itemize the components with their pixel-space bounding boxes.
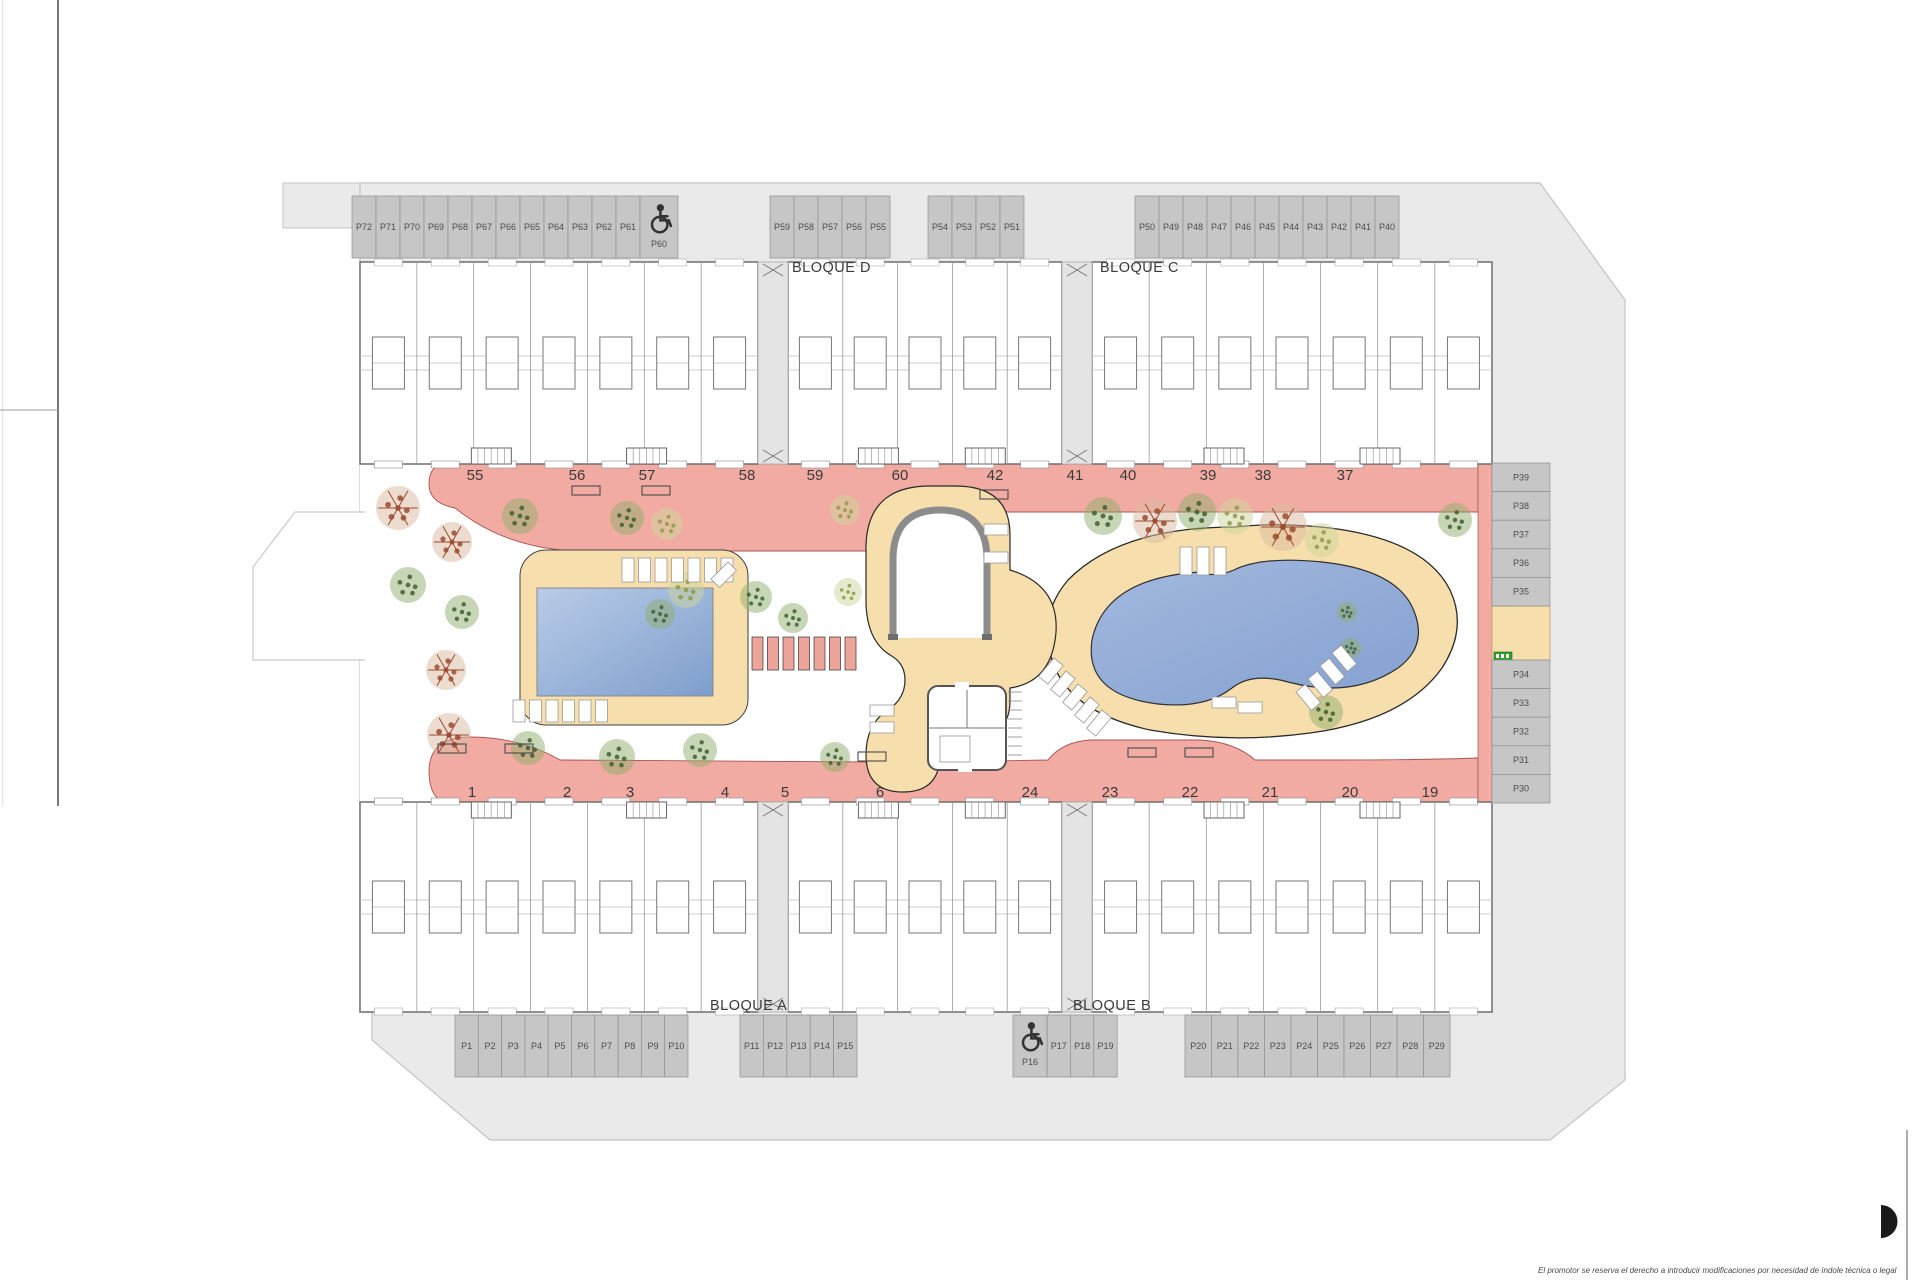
unit-number: 21 [1262, 784, 1279, 801]
sun-lounger [546, 700, 558, 722]
parking-stall-label: P23 [1270, 1041, 1286, 1051]
parking-stall-label: P36 [1513, 558, 1529, 568]
parking-stall: P41 [1351, 196, 1375, 258]
parking-stall: P71 [376, 196, 400, 258]
site-plan-drawing: P72P71P70P69P68P67P66P65P64P63P62P61P59P… [0, 0, 1920, 1280]
parking-stall: P24 [1291, 1015, 1318, 1077]
unit-number: 22 [1182, 784, 1199, 801]
parking-stall-label: P69 [428, 222, 444, 232]
parking-stall: P6 [572, 1015, 595, 1077]
parking-stall: P57 [818, 196, 842, 258]
parking-stall: P36 [1492, 549, 1550, 578]
stepping-stone [783, 637, 794, 670]
parking-stall: P68 [448, 196, 472, 258]
parking-stall: P23 [1265, 1015, 1292, 1077]
parking-stall: P29 [1424, 1015, 1451, 1077]
parking-stall-label: P55 [870, 222, 886, 232]
tree-icon [1084, 497, 1122, 535]
unit-number: 3 [626, 784, 634, 801]
parking-stall-label: P66 [500, 222, 516, 232]
unit-number: 57 [639, 467, 656, 484]
sun-lounger [870, 705, 894, 716]
parking-stall-label: P57 [822, 222, 838, 232]
sun-lounger [688, 558, 700, 582]
parking-stall-label: P6 [578, 1041, 589, 1051]
parking-stall: P55 [866, 196, 890, 258]
parking-stall-label: P64 [548, 222, 564, 232]
parking-stall-label: P19 [1097, 1041, 1113, 1051]
tree-icon [778, 603, 808, 633]
parking-stall-label: P65 [524, 222, 540, 232]
parking-stall: P20 [1185, 1015, 1212, 1077]
parking-stall: P22 [1238, 1015, 1265, 1077]
parking-stall-label: P32 [1513, 727, 1529, 737]
parking-stall-label: P46 [1235, 222, 1251, 232]
unit-number: 1 [468, 784, 476, 801]
parking-stall-label: P22 [1243, 1041, 1259, 1051]
accessible-parking-stall: P16 [1013, 1015, 1047, 1077]
tree-icon [651, 508, 683, 540]
tree-icon [1217, 498, 1253, 534]
parking-stall: P39 [1492, 463, 1550, 492]
sun-lounger [1238, 702, 1262, 713]
unit-number: 58 [739, 467, 756, 484]
parking-stall: P64 [544, 196, 568, 258]
parking-stall: P52 [976, 196, 1000, 258]
parking-stall-label: P35 [1513, 587, 1529, 597]
tree-icon [427, 713, 471, 757]
block-a-label: BLOQUE A [710, 998, 787, 1014]
parking-stall: P30 [1492, 774, 1550, 803]
unit-number: 24 [1022, 784, 1039, 801]
building-block [788, 259, 1062, 468]
sun-lounger [530, 700, 542, 722]
sun-lounger [984, 524, 1008, 535]
sun-lounger [1197, 547, 1209, 575]
tree-icon [390, 567, 426, 603]
sun-lounger [563, 700, 575, 722]
parking-stall: P12 [763, 1015, 786, 1077]
parking-stall: P50 [1135, 196, 1159, 258]
parking-stall-label: P27 [1376, 1041, 1392, 1051]
parking-stall: P61 [616, 196, 640, 258]
tree-icon [502, 498, 538, 534]
parking-stall-label: P30 [1513, 784, 1529, 794]
building-block [1092, 798, 1492, 1015]
parking-stall-label: P8 [624, 1041, 635, 1051]
parking-stall: P18 [1070, 1015, 1093, 1077]
parking-stall-label: P50 [1139, 222, 1155, 232]
parking-stall-label: P39 [1513, 472, 1529, 482]
site-plan-page: P72P71P70P69P68P67P66P65P64P63P62P61P59P… [0, 0, 1920, 1280]
parking-stall: P1 [455, 1015, 478, 1077]
accessible-parking-stall: P60 [640, 196, 678, 258]
unit-number: 37 [1337, 467, 1354, 484]
unit-number: 42 [987, 467, 1004, 484]
sun-lounger [639, 558, 651, 582]
parking-stall: P34 [1492, 660, 1550, 689]
parking-stall: P8 [618, 1015, 641, 1077]
parking-stall-label: P45 [1259, 222, 1275, 232]
parking-stall-label: P42 [1331, 222, 1347, 232]
parking-stall-label: P17 [1051, 1041, 1067, 1051]
parking-stall-label: P12 [767, 1041, 783, 1051]
stepping-stone [814, 637, 825, 670]
sun-lounger [1214, 547, 1226, 575]
parking-stall: P69 [424, 196, 448, 258]
building-block [788, 798, 1062, 1015]
tree-icon [599, 739, 635, 775]
sun-lounger [984, 552, 1008, 563]
parking-stall: P21 [1212, 1015, 1239, 1077]
parking-stall: P2 [478, 1015, 501, 1077]
parking-stall-label: P67 [476, 222, 492, 232]
parking-stall-label: P68 [452, 222, 468, 232]
building-block [1092, 259, 1492, 468]
tree-icon [1337, 602, 1357, 622]
parking-stall-label: P47 [1211, 222, 1227, 232]
stepping-stone [845, 637, 856, 670]
boundary-lines [0, 0, 58, 806]
parking-stall-label: P53 [956, 222, 972, 232]
parking-stall: P11 [740, 1015, 763, 1077]
sun-lounger [596, 700, 608, 722]
sun-lounger [870, 722, 894, 733]
parking-stall-label: P37 [1513, 530, 1529, 540]
block-passage [1062, 262, 1092, 464]
parking-stall-label: P1 [461, 1041, 472, 1051]
parking-stall-label: P5 [554, 1041, 565, 1051]
parking-stall: P40 [1375, 196, 1399, 258]
parking-stall-label: P48 [1187, 222, 1203, 232]
unit-number: 6 [876, 784, 884, 801]
parking-stall-label: P15 [837, 1041, 853, 1051]
tree-icon [610, 501, 644, 535]
parking-stall-label: P72 [356, 222, 372, 232]
parking-stall: P3 [502, 1015, 525, 1077]
block-d-label: BLOQUE D [792, 260, 871, 276]
parking-stall: P44 [1279, 196, 1303, 258]
unit-number: 40 [1120, 467, 1137, 484]
sun-lounger [655, 558, 667, 582]
parking-stall-label: P54 [932, 222, 948, 232]
unit-number: 19 [1422, 784, 1439, 801]
parking-stall-label: P60 [651, 239, 667, 249]
unit-number: 41 [1067, 467, 1084, 484]
block-passage [758, 802, 788, 1012]
parking-stall-label: P4 [531, 1041, 542, 1051]
parking-stall: P7 [595, 1015, 618, 1077]
parking-stall: P4 [525, 1015, 548, 1077]
parking-stall-label: P13 [790, 1041, 806, 1051]
parking-stall-label: P26 [1349, 1041, 1365, 1051]
tree-icon [1133, 499, 1177, 543]
parking-stall-label: P59 [774, 222, 790, 232]
parking-stall-label: P52 [980, 222, 996, 232]
parking-stall: P14 [810, 1015, 833, 1077]
parking-stall-label: P49 [1163, 222, 1179, 232]
building-block [360, 259, 758, 468]
parking-stall-label: P10 [668, 1041, 684, 1051]
parking-stall: P28 [1397, 1015, 1424, 1077]
parking-stall: P47 [1207, 196, 1231, 258]
parking-stall-label: P24 [1296, 1041, 1312, 1051]
tree-icon [1305, 523, 1339, 557]
parking-stall: P53 [952, 196, 976, 258]
parking-stall: P37 [1492, 520, 1550, 549]
tree-icon [834, 578, 862, 606]
parking-stall-label: P63 [572, 222, 588, 232]
unit-number: 55 [467, 467, 484, 484]
sun-lounger [1180, 547, 1192, 575]
parking-stall: P45 [1255, 196, 1279, 258]
tree-icon [645, 599, 675, 629]
parking-stall-label: P70 [404, 222, 420, 232]
tree-icon [376, 486, 420, 530]
parking-stall-label: P20 [1190, 1041, 1206, 1051]
parking-stall-label: P56 [846, 222, 862, 232]
disclaimer-text: El promotor se reserva el derecho a intr… [1538, 1266, 1897, 1275]
parking-stall-label: P58 [798, 222, 814, 232]
parking-stall-label: P28 [1402, 1041, 1418, 1051]
parking-stall-label: P7 [601, 1041, 612, 1051]
parking-stall: P33 [1492, 689, 1550, 718]
parking-stall: P49 [1159, 196, 1183, 258]
unit-number: 5 [781, 784, 789, 801]
parking-stall: P13 [787, 1015, 810, 1077]
parking-stall: P48 [1183, 196, 1207, 258]
unit-number: 39 [1200, 467, 1217, 484]
stepping-stone [768, 637, 779, 670]
parking-stall-label: P14 [814, 1041, 830, 1051]
arch-pavilion [893, 510, 987, 638]
parking-stall-label: P18 [1074, 1041, 1090, 1051]
sun-lounger [622, 558, 634, 582]
parking-stall-label: P43 [1307, 222, 1323, 232]
block-b-label: BLOQUE B [1073, 998, 1151, 1014]
unit-number: 20 [1342, 784, 1359, 801]
block-passage [758, 262, 788, 464]
parking-stall: P46 [1231, 196, 1255, 258]
unit-number: 23 [1102, 784, 1119, 801]
parking-stall-label: P41 [1355, 222, 1371, 232]
parking-stall: P54 [928, 196, 952, 258]
sun-lounger [513, 700, 525, 722]
parking-stall-label: P25 [1323, 1041, 1339, 1051]
parking-stall: P27 [1371, 1015, 1398, 1077]
unit-number: 2 [563, 784, 571, 801]
unit-number: 38 [1255, 467, 1272, 484]
parking-stall-label: P44 [1283, 222, 1299, 232]
tree-icon [1438, 503, 1472, 537]
parking-stall: P59 [770, 196, 794, 258]
unit-number: 60 [892, 467, 909, 484]
parking-stall-label: P62 [596, 222, 612, 232]
tree-icon [426, 650, 466, 690]
parking-stall: P65 [520, 196, 544, 258]
parking-stall: P58 [794, 196, 818, 258]
parking-stall-label: P16 [1022, 1057, 1038, 1067]
parking-stall: P35 [1492, 577, 1550, 606]
corner-marks [1881, 1130, 1907, 1280]
parking-stall-label: P11 [744, 1041, 759, 1051]
parking-stall: P9 [641, 1015, 664, 1077]
parking-stall: P26 [1344, 1015, 1371, 1077]
parking-stall: P43 [1303, 196, 1327, 258]
unit-number: 59 [807, 467, 824, 484]
unit-number: 56 [569, 467, 586, 484]
parking-stall-label: P3 [508, 1041, 519, 1051]
half-disc-mark [1881, 1205, 1898, 1238]
emergency-exit-sign [1494, 652, 1512, 660]
tree-icon [820, 742, 850, 772]
parking-stall: P25 [1318, 1015, 1345, 1077]
parking-stall: P17 [1047, 1015, 1070, 1077]
stepping-stone [830, 637, 841, 670]
parking-stall-label: P2 [484, 1041, 495, 1051]
tree-icon [1259, 503, 1307, 551]
tree-icon [683, 733, 717, 767]
parking-stall: P66 [496, 196, 520, 258]
stepping-stone [799, 637, 810, 670]
east-walkway-strip [1478, 464, 1492, 802]
parking-stall: P31 [1492, 746, 1550, 775]
building-block [360, 798, 758, 1015]
parking-stall: P56 [842, 196, 866, 258]
parking-stall: P42 [1327, 196, 1351, 258]
parking-stall: P62 [592, 196, 616, 258]
parking-stall: P72 [352, 196, 376, 258]
parking-stall-label: P33 [1513, 698, 1529, 708]
tree-icon [740, 581, 772, 613]
stepping-stones [752, 637, 856, 670]
parking-stall: P32 [1492, 717, 1550, 746]
parking-stall: P19 [1094, 1015, 1117, 1077]
parking-stall-label: P38 [1513, 501, 1529, 511]
sun-lounger [579, 700, 591, 722]
tree-icon [1178, 493, 1216, 531]
parking-stall: P67 [472, 196, 496, 258]
tree-icon [830, 495, 860, 525]
parking-stall-label: P29 [1429, 1041, 1445, 1051]
parking-stall: P51 [1000, 196, 1024, 258]
parking-stall: P70 [400, 196, 424, 258]
sun-lounger [1212, 697, 1236, 708]
parking-stall: P5 [548, 1015, 571, 1077]
block-passage [1062, 802, 1092, 1012]
sun-lounger [672, 558, 684, 582]
unit-number: 4 [721, 784, 729, 801]
parking-stall-label: P71 [380, 222, 396, 232]
parking-stall-label: P40 [1379, 222, 1395, 232]
west-boundary-notch [253, 512, 365, 660]
parking-stall-label: P61 [620, 222, 636, 232]
east-entrance [1492, 598, 1550, 660]
block-c-label: BLOQUE C [1100, 260, 1179, 276]
tree-icon [511, 731, 545, 765]
parking-stall-label: P21 [1217, 1041, 1233, 1051]
parking-stall-label: P34 [1513, 669, 1529, 679]
tree-icon [445, 595, 479, 629]
parking-stall: P63 [568, 196, 592, 258]
parking-stall-label: P51 [1004, 222, 1020, 232]
parking-stall: P10 [665, 1015, 688, 1077]
parking-stall-label: P9 [648, 1041, 659, 1051]
tree-icon [432, 522, 472, 562]
parking-stall-label: P31 [1513, 755, 1529, 765]
stepping-stone [752, 637, 763, 670]
parking-stall: P38 [1492, 492, 1550, 521]
parking-stall: P15 [834, 1015, 857, 1077]
